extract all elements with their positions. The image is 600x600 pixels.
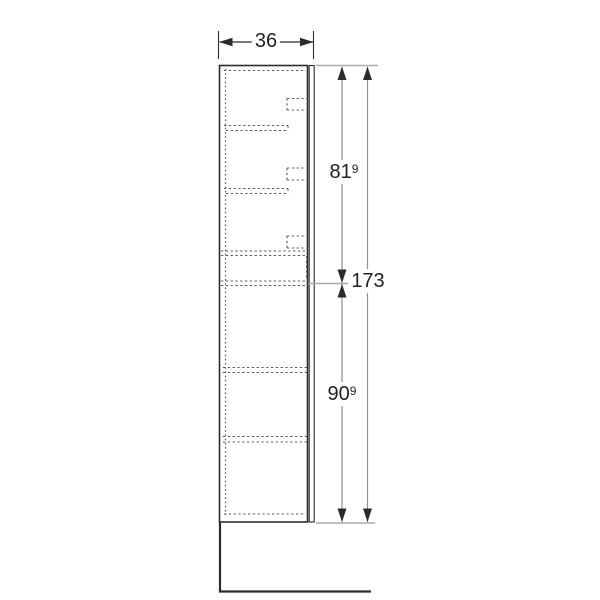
label-upper-height: 819	[327, 160, 362, 184]
arrowhead-up	[363, 67, 372, 81]
dimension-drawing: 36 819 173 909	[0, 0, 600, 600]
label-upper-sup: 9	[352, 162, 359, 176]
label-lower-height: 909	[325, 382, 360, 406]
label-width-value: 36	[255, 30, 277, 52]
cabinet	[220, 66, 315, 523]
arrowhead-right	[300, 38, 314, 46]
label-upper-value: 81	[330, 161, 352, 183]
floor-profile	[220, 522, 371, 592]
arrowhead-down	[363, 509, 372, 523]
label-width: 36	[252, 29, 280, 53]
label-total-value: 173	[351, 270, 384, 292]
label-lower-sup: 9	[350, 384, 357, 398]
arrowhead-down	[338, 270, 347, 284]
arrowhead-down	[338, 509, 347, 523]
arrowhead-up	[338, 284, 347, 298]
dimension-total-height	[363, 67, 372, 523]
arrowhead-up	[338, 67, 347, 81]
cabinet-body	[220, 66, 308, 523]
label-total-height: 173	[348, 269, 387, 293]
label-lower-value: 90	[328, 383, 350, 405]
arrowhead-left	[219, 38, 233, 46]
cabinet-door-panel	[309, 66, 314, 523]
drawing-canvas	[0, 0, 600, 600]
